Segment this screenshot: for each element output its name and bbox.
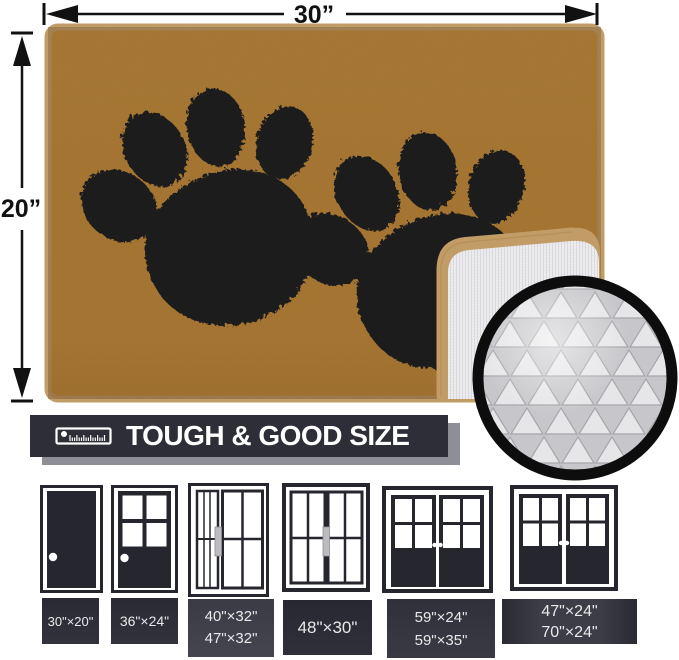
size-text: 47"×24": [541, 601, 597, 622]
feature-banner: TOUGH & GOOD SIZE: [30, 415, 448, 457]
arrowhead-down-icon: [13, 368, 31, 398]
door-handle-icon: [432, 543, 436, 547]
door-knob-icon: [120, 554, 128, 562]
arrowhead-right-icon: [565, 5, 597, 23]
door-double-french: [382, 486, 493, 595]
arrowhead-up-icon: [13, 36, 31, 66]
size-label: 47"×24" 70"×24": [502, 599, 637, 644]
size-label: 30"×20": [42, 598, 99, 644]
door-solid-single: [40, 485, 103, 593]
size-label: 40"×32" 47"×32": [188, 599, 274, 657]
size-text: 70"×24": [541, 622, 597, 643]
size-text: 59"×35": [415, 629, 468, 652]
door-half-window: [111, 485, 178, 593]
door-handle-icon: [559, 541, 563, 545]
door-sliding-wide: [282, 483, 370, 596]
size-label: 48"×30": [283, 600, 372, 655]
size-text: 48"×30": [298, 618, 358, 638]
height-dimension-label: 20”: [1, 195, 41, 223]
size-text: 47"×32": [205, 628, 258, 650]
size-text: 59"×24": [415, 606, 468, 629]
product-infographic: 30” 20” TOUGH & GOOD SIZE 30"×20": [0, 0, 679, 660]
door-sliding-narrow: [188, 483, 269, 597]
size-label: 59"×24" 59"×35": [387, 599, 495, 658]
door-handle-icon: [565, 541, 569, 545]
size-text: 40"×32": [205, 606, 258, 628]
door-knob-icon: [49, 553, 57, 561]
size-text: 30"×20": [48, 614, 94, 629]
door-handle-icon: [215, 527, 222, 556]
door-handle-icon: [323, 527, 330, 556]
width-dimension-label: 30”: [294, 1, 334, 29]
height-dimension: 20”: [1, 33, 41, 401]
backing-zoom-inset: [478, 281, 672, 475]
banner-title: TOUGH & GOOD SIZE: [126, 420, 409, 452]
ruler-icon: [55, 426, 113, 446]
size-label: 36"×24": [111, 598, 178, 644]
arrowhead-left-icon: [46, 5, 78, 23]
mat-scene: 30” 20”: [0, 0, 679, 482]
size-text: 36"×24": [120, 613, 169, 629]
door-double-french: [510, 485, 618, 593]
door-handle-icon: [438, 543, 442, 547]
